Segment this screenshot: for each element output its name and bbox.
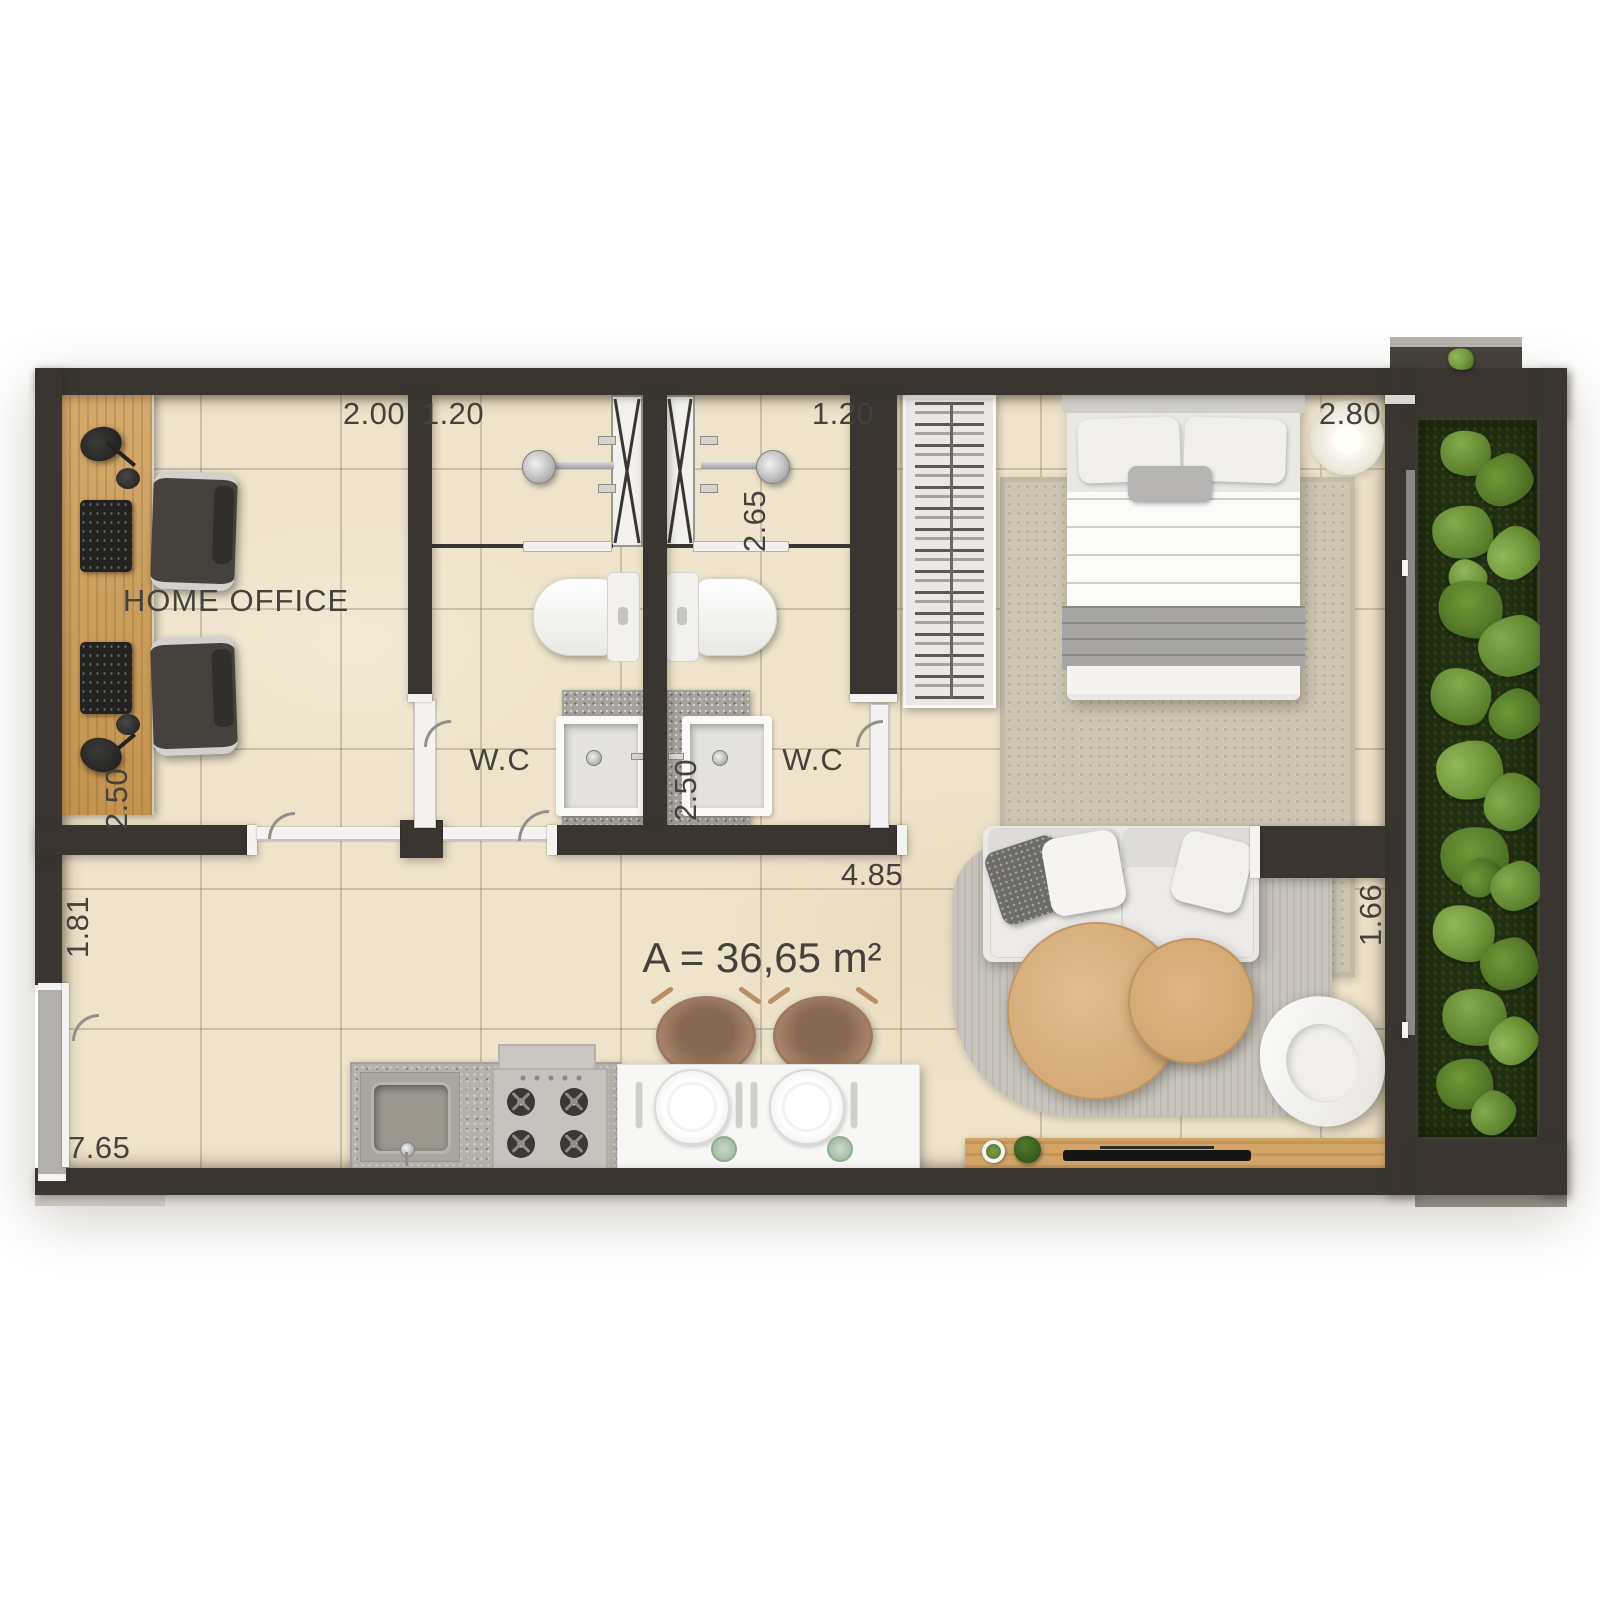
wardrobe-rack bbox=[903, 395, 996, 708]
door-jamb bbox=[897, 825, 907, 855]
toilet-tank bbox=[666, 572, 699, 662]
door-jamb bbox=[247, 825, 257, 855]
dim-kitchen-hall-width: 1.81 bbox=[60, 827, 96, 1027]
garden-bottom-wall bbox=[1415, 1140, 1567, 1195]
keyboard bbox=[80, 500, 132, 572]
fork-icon bbox=[851, 1082, 857, 1128]
floor-plan-canvas: HOME OFFICE W.C W.C A = 36,65 m² 2.00 1.… bbox=[0, 0, 1600, 1600]
shower-glass-panel bbox=[665, 395, 695, 547]
bed-sheet bbox=[1067, 492, 1300, 610]
area-label: A = 36,65 m² bbox=[562, 932, 962, 984]
bathrooms-center-wall bbox=[643, 395, 667, 828]
knife-icon bbox=[751, 1082, 757, 1128]
shower-valve bbox=[598, 484, 616, 493]
bed-foot-fold bbox=[1067, 666, 1300, 694]
garden-outer-step bbox=[1415, 1195, 1567, 1207]
dim-wc-right-lower-width: 2.50 bbox=[668, 690, 704, 890]
balcony-sliding-door-glass bbox=[1406, 470, 1415, 1035]
tv-icon bbox=[1063, 1150, 1251, 1161]
burner-icon bbox=[560, 1130, 588, 1158]
garden-right-wall bbox=[1540, 368, 1567, 1195]
place-setting-plate bbox=[654, 1069, 730, 1145]
flush-button bbox=[618, 607, 628, 625]
dim-wc-right-depth: 2.65 bbox=[737, 421, 773, 621]
dim-balcony-door-width: 1.66 bbox=[1353, 815, 1389, 1015]
wc-right-wall bbox=[850, 395, 897, 700]
top-wall bbox=[35, 368, 1415, 395]
sliding-door-handle bbox=[1402, 1022, 1408, 1038]
knife-icon bbox=[636, 1082, 642, 1128]
dim-wc-left-width: 1.20 bbox=[353, 396, 553, 432]
room-label-wc-right: W.C bbox=[713, 741, 913, 779]
potted-cactus-icon bbox=[982, 1140, 1005, 1163]
toilet bbox=[533, 578, 615, 656]
stove-cooktop bbox=[492, 1068, 608, 1170]
vertical-garden-bed bbox=[1415, 417, 1540, 1140]
room-label-home-office: HOME OFFICE bbox=[36, 582, 436, 620]
desk-lamp-knob bbox=[116, 468, 140, 489]
cup-icon bbox=[827, 1136, 853, 1162]
shower-valve bbox=[598, 436, 616, 445]
wall-end-cap bbox=[850, 694, 897, 702]
bathrooms-bottom-wall bbox=[552, 825, 905, 855]
cup-icon bbox=[711, 1136, 737, 1162]
sliding-door-handle bbox=[1402, 560, 1408, 576]
flush-button bbox=[677, 607, 687, 625]
toilet-tank bbox=[607, 572, 640, 662]
home-office-right-wall bbox=[408, 395, 432, 700]
bottom-wall bbox=[35, 1168, 1415, 1195]
shower-sliding-door bbox=[523, 541, 612, 552]
dim-wc-right-width: 1.20 bbox=[743, 396, 943, 432]
fork-icon bbox=[736, 1082, 742, 1128]
room-label-wc-left: W.C bbox=[400, 741, 600, 779]
tv-stand-line bbox=[1100, 1146, 1214, 1149]
stove-knobs bbox=[516, 1074, 586, 1082]
bed-lumbar-pillow bbox=[1128, 466, 1212, 502]
shower-glass-panel bbox=[611, 395, 643, 547]
kitchen-faucet-stem bbox=[405, 1152, 408, 1166]
shower-valve bbox=[700, 484, 718, 493]
dim-apartment-length: 7.65 bbox=[68, 1130, 188, 1166]
burner-icon bbox=[507, 1130, 535, 1158]
bed-blanket bbox=[1062, 606, 1305, 670]
chair-backrest bbox=[212, 486, 235, 565]
shower-head-icon bbox=[522, 450, 556, 484]
cactus bbox=[986, 1144, 1001, 1159]
entry-step bbox=[35, 1195, 165, 1206]
garden-parapet-light bbox=[1390, 337, 1522, 347]
dim-living-kitchen-length: 4.85 bbox=[772, 857, 972, 893]
burner-icon bbox=[560, 1088, 588, 1116]
office-chair bbox=[150, 471, 238, 592]
throw-pillow-white bbox=[1040, 828, 1128, 918]
chair-backrest bbox=[211, 649, 234, 728]
place-setting-plate bbox=[769, 1069, 845, 1145]
burner-icon bbox=[507, 1088, 535, 1116]
shower-arm bbox=[552, 462, 614, 469]
left-wall bbox=[35, 368, 62, 985]
lounge-chair-seat bbox=[1274, 1012, 1372, 1114]
wall-end-cap bbox=[408, 694, 432, 702]
dim-home-office-depth: 2.50 bbox=[99, 699, 135, 899]
range-hood bbox=[498, 1044, 596, 1070]
door-jamb bbox=[1250, 826, 1260, 878]
coffee-table-small bbox=[1128, 938, 1254, 1064]
shower-valve bbox=[700, 436, 718, 445]
wardrobe-rail bbox=[950, 404, 953, 699]
office-chair bbox=[150, 636, 238, 757]
dim-bedroom-width: 2.80 bbox=[1250, 396, 1450, 432]
moss-ball-plant-icon bbox=[1014, 1136, 1041, 1163]
